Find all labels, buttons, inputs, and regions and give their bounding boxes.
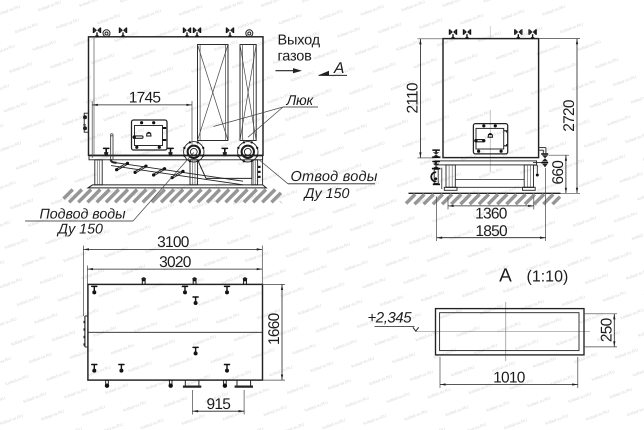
svg-text:2110: 2110 [404, 82, 421, 113]
svg-text:660: 660 [550, 160, 567, 185]
svg-text:1660: 1660 [266, 312, 283, 345]
svg-text:Подвод воды: Подвод воды [40, 206, 127, 222]
svg-text:3100: 3100 [157, 234, 190, 251]
svg-text:Выход: Выход [278, 32, 321, 48]
svg-text:1360: 1360 [475, 205, 508, 222]
svg-text:А: А [333, 60, 344, 77]
svg-text:А: А [499, 265, 512, 286]
svg-text:газов: газов [278, 48, 313, 64]
svg-text:1745: 1745 [129, 90, 161, 107]
svg-text:3020: 3020 [159, 254, 192, 271]
svg-text:Люк: Люк [286, 93, 315, 109]
svg-text:1010: 1010 [493, 369, 526, 386]
svg-text:915: 915 [206, 396, 230, 413]
svg-text:Ду 150: Ду 150 [56, 221, 103, 237]
svg-text:250: 250 [598, 317, 615, 342]
svg-text:(1:10): (1:10) [527, 268, 569, 285]
svg-text:2720: 2720 [561, 99, 578, 132]
svg-text:+2,345: +2,345 [368, 310, 413, 327]
svg-text:1850: 1850 [475, 223, 508, 240]
svg-text:Ду 150: Ду 150 [303, 186, 350, 202]
svg-text:Отвод воды: Отвод воды [291, 169, 378, 185]
